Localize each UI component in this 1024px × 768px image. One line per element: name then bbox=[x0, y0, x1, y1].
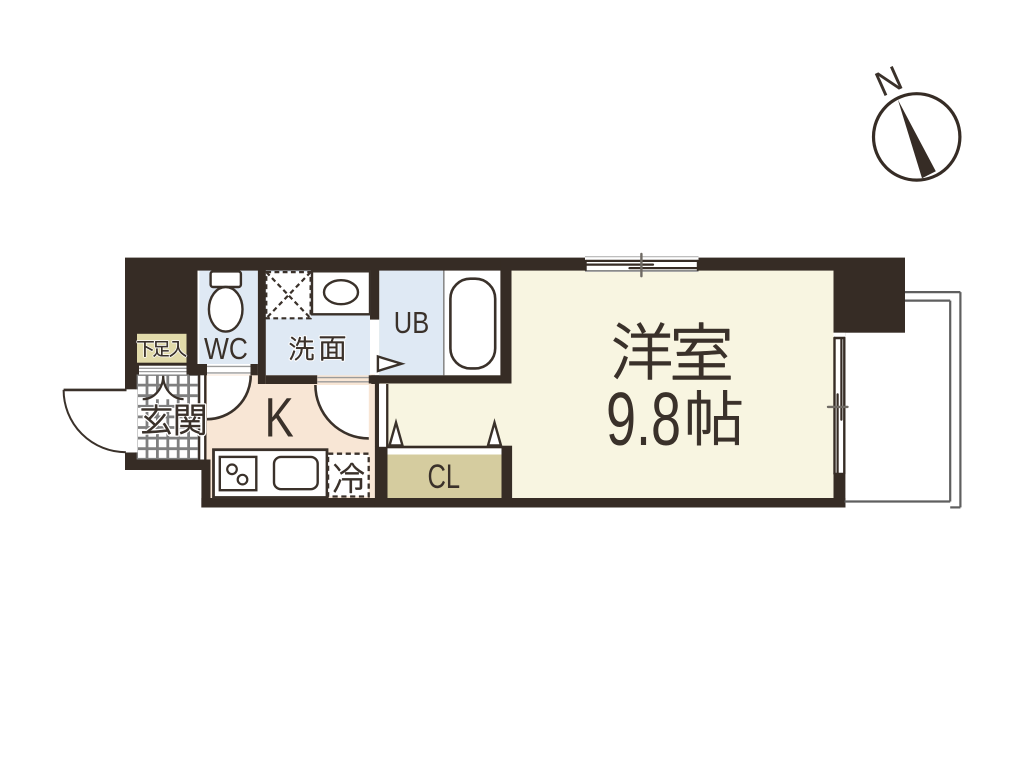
svg-text:WC: WC bbox=[204, 332, 248, 366]
svg-text:K: K bbox=[265, 386, 294, 448]
svg-text:CL: CL bbox=[427, 458, 460, 495]
svg-text:9.8: 9.8 bbox=[606, 377, 681, 461]
svg-text:UB: UB bbox=[394, 305, 429, 340]
